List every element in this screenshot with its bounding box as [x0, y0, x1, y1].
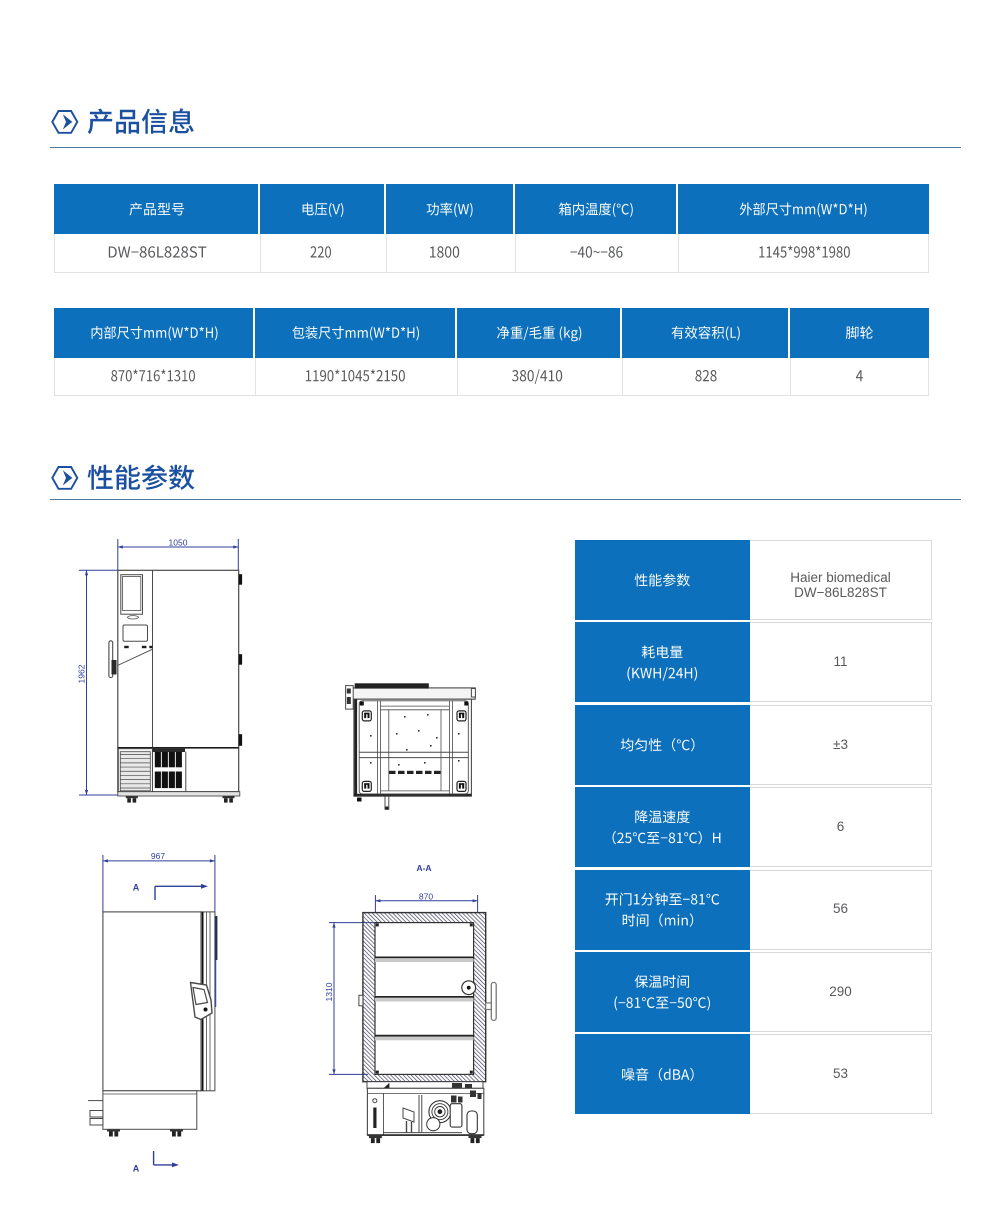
svg-text:A-A: A-A — [416, 863, 431, 873]
svg-text:A: A — [133, 1164, 140, 1174]
svg-text:967: 967 — [151, 851, 165, 861]
svg-text:1962: 1962 — [76, 664, 86, 683]
svg-text:A: A — [133, 883, 140, 893]
svg-text:870: 870 — [419, 891, 433, 901]
svg-text:1050: 1050 — [169, 537, 188, 547]
svg-text:1310: 1310 — [324, 982, 334, 1001]
